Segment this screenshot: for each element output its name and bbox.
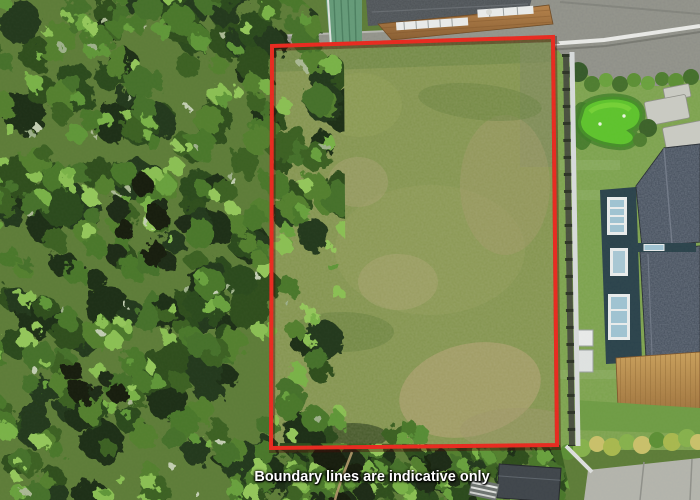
photo-grain [0,0,700,500]
boundary-disclaimer: Boundary lines are indicative only [254,469,489,485]
aerial-photo-canvas [0,0,700,500]
aerial-listing-photo: Boundary lines are indicative only [0,0,700,500]
